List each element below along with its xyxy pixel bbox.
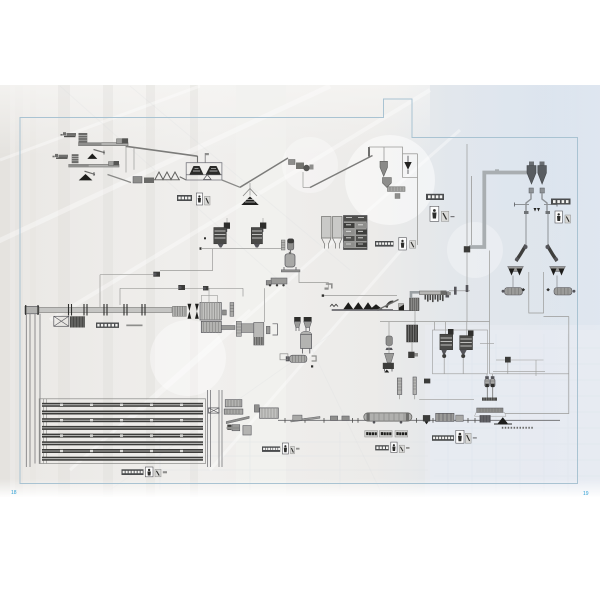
svg-text:18: 18: [11, 490, 17, 496]
svg-text:19: 19: [583, 491, 589, 497]
